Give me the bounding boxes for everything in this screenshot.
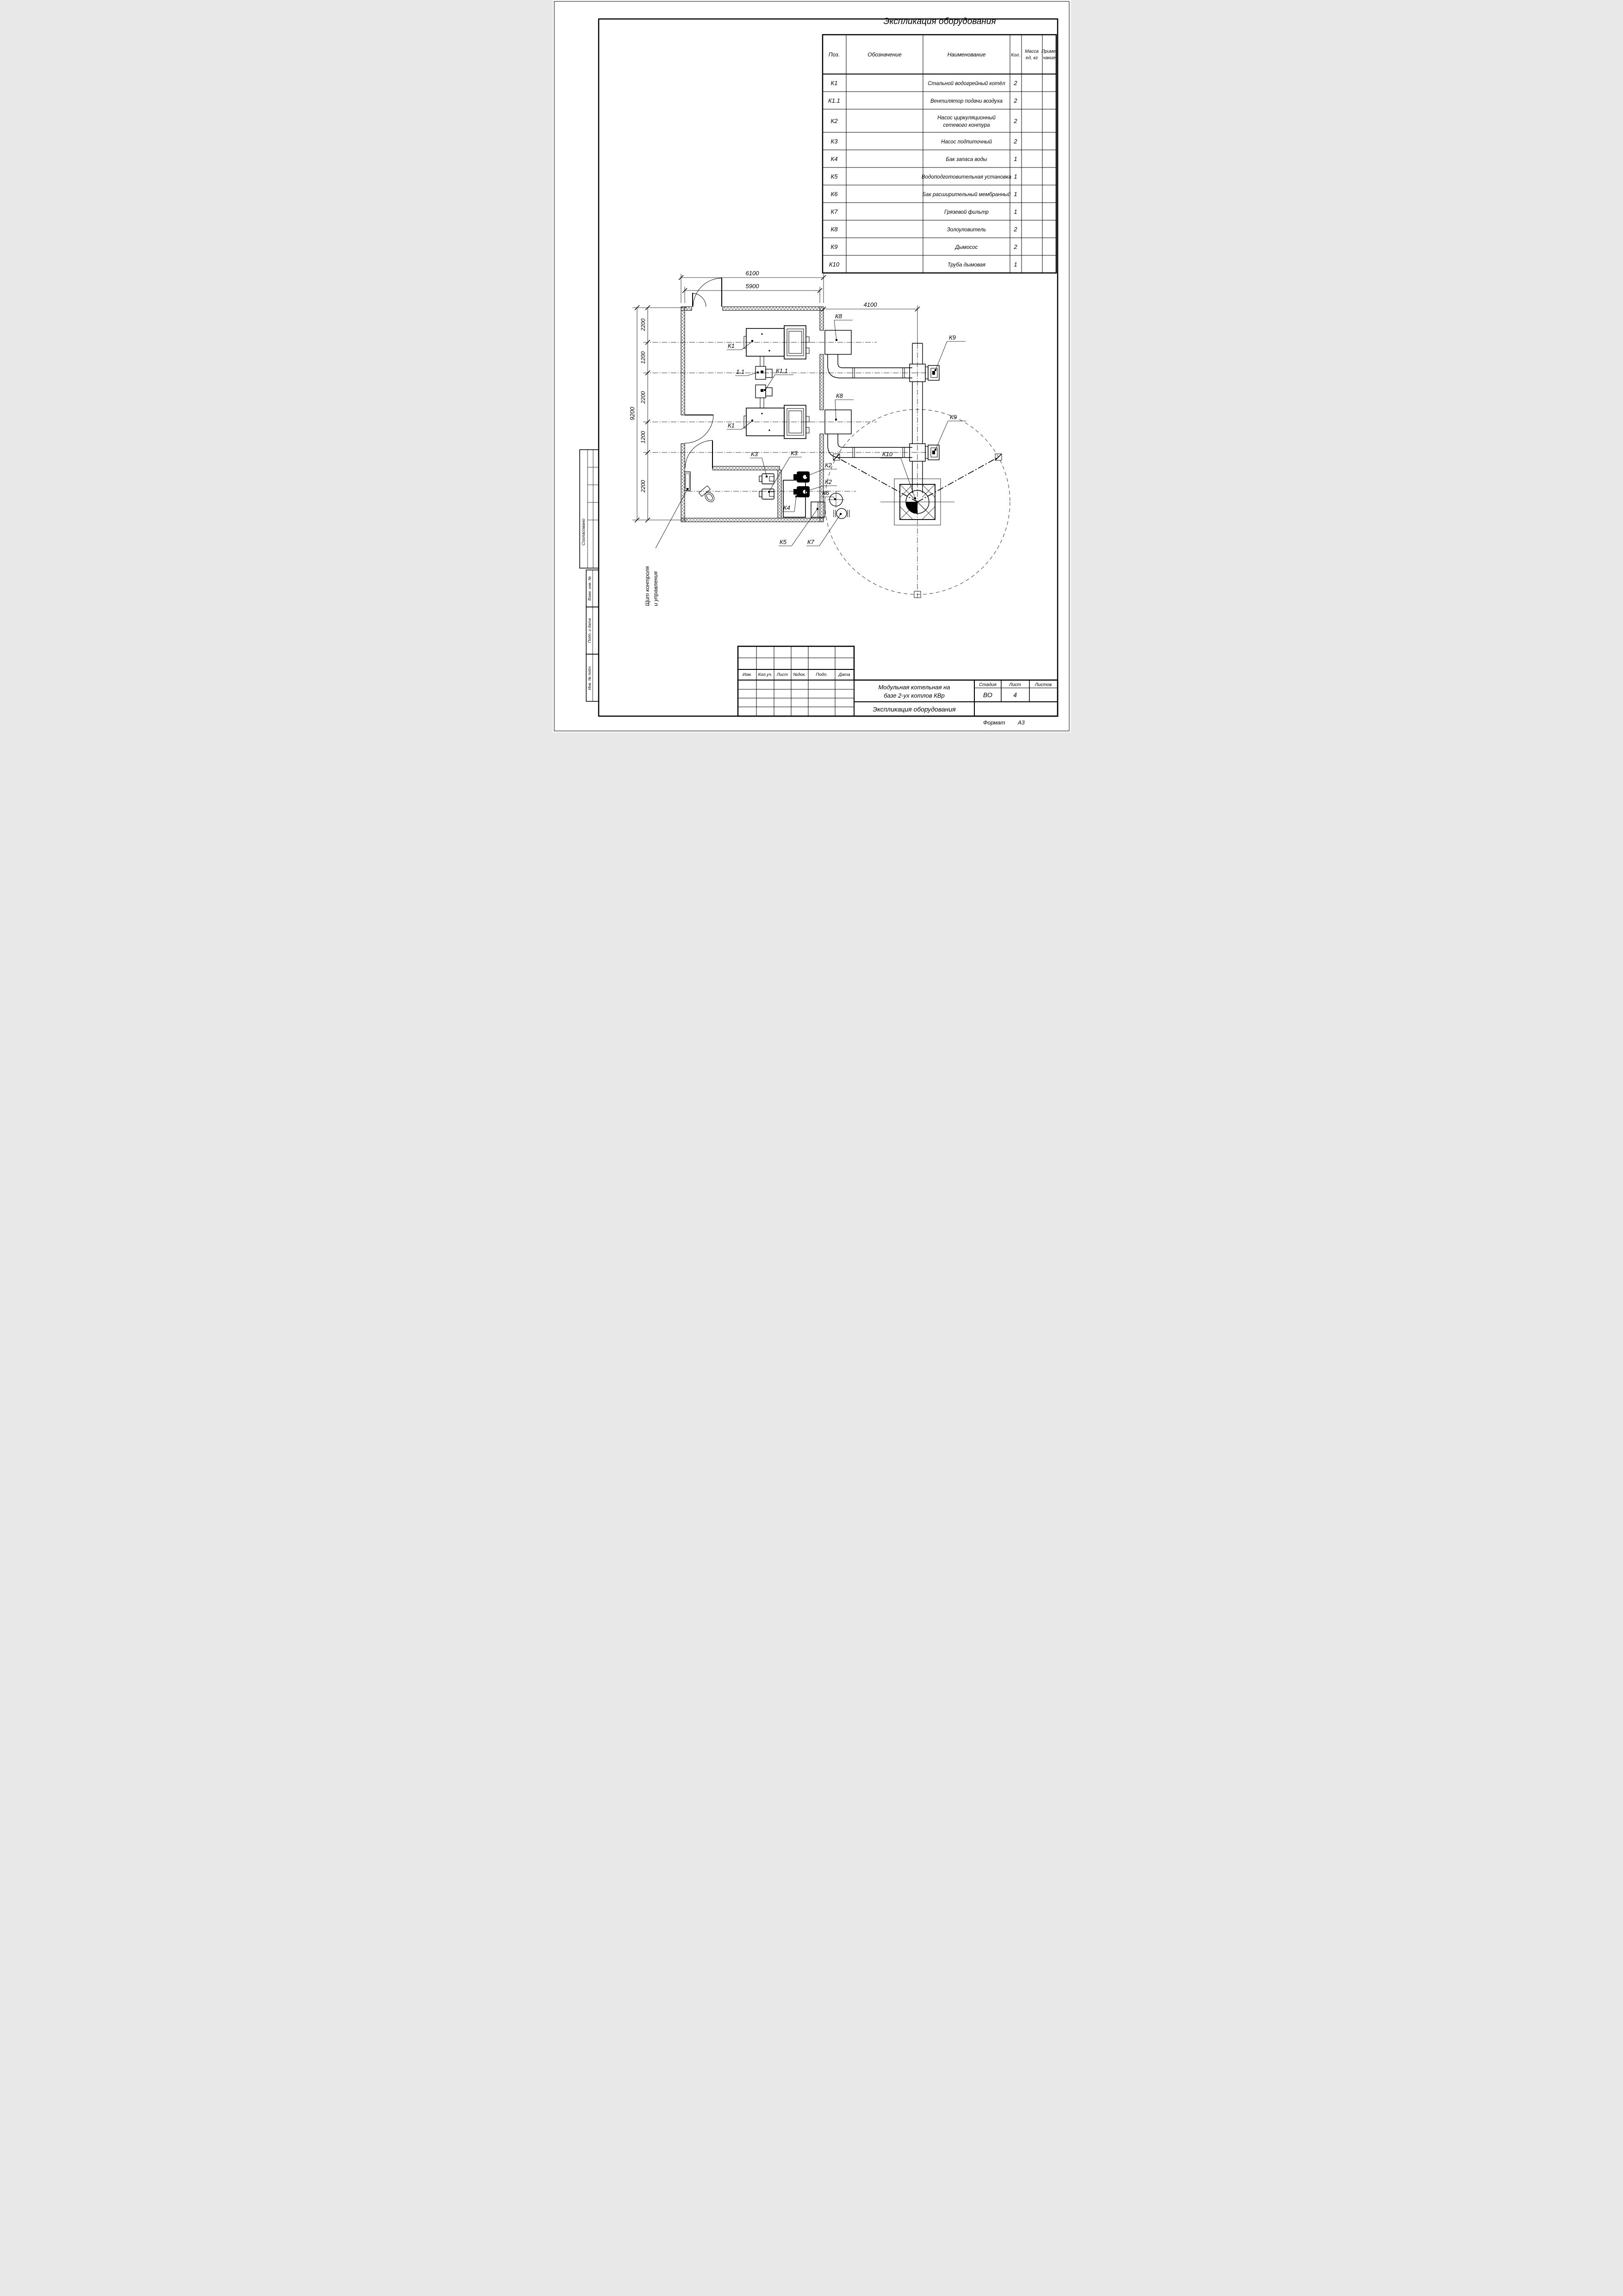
door-left-wall (685, 415, 713, 443)
rev-header: Подп. (816, 672, 827, 677)
label-k9a: К9 (949, 334, 956, 341)
row-qty: 1 (1014, 173, 1017, 180)
col-header-qty: Кол. (1011, 53, 1020, 58)
door-partition (685, 440, 712, 468)
sheet-value: 4 (1013, 691, 1017, 699)
row-qty: 1 (1014, 208, 1017, 215)
project-title-line1: Модульная котельная на (878, 684, 950, 691)
dim-chain-value: 2200 (640, 391, 646, 404)
label-k4: К4 (783, 504, 790, 511)
rev-header: №док. (793, 672, 806, 677)
label-fan2: К1.1 (776, 367, 788, 374)
dim-chain-value: 1200 (640, 351, 646, 364)
stage-label: Стадия (979, 682, 997, 687)
sheet-label: Лист (1009, 682, 1021, 687)
col-header-pos: Поз. (828, 51, 839, 58)
sidebar-cell-inv: Инв. № подл. (587, 666, 592, 690)
door-top (693, 278, 722, 307)
dim-5900-value: 5900 (745, 283, 759, 290)
row-name: Насос циркуляционный (937, 115, 996, 121)
label-control-panel-1: Щит контроля (644, 566, 650, 606)
row-name: Золоуловитель (947, 227, 986, 233)
dim-4100-value: 4100 (863, 301, 877, 308)
dim-chain-value: 2200 (640, 318, 646, 331)
equipment-table-header-text: Поз. Обозначение Наименование Кол. Масса… (828, 49, 1057, 61)
row-pos: К9 (830, 243, 837, 250)
label-fan1: 1.1 (736, 368, 744, 375)
row-pos: К6 (830, 191, 838, 198)
stage-value: ВО (983, 691, 992, 699)
row-name: Грязевой фильтр (944, 210, 989, 215)
row-qty: 2 (1013, 243, 1017, 250)
col-header-mass: Масса (1025, 49, 1039, 54)
row-pos: К1.1 (828, 97, 840, 104)
fan-2 (756, 385, 772, 408)
row-name: Труба дымовая (947, 262, 985, 268)
row-qty: 2 (1013, 226, 1017, 233)
col-header-mass2: ед, кг (1025, 56, 1037, 61)
flue-duct-1 (828, 354, 912, 378)
dimension-4100 (821, 305, 920, 343)
row-qty: 1 (1014, 191, 1017, 198)
label-k3a: К3 (751, 451, 758, 458)
row-pos: К1 (830, 80, 837, 87)
row-qty: 2 (1013, 97, 1017, 104)
label-k3b: К3 (791, 450, 798, 457)
format-value: А3 (1017, 719, 1025, 726)
drawing-canvas: Согласовано Взам. инв. № Подп. и дата Ин… (553, 0, 1071, 732)
label-k2a: К2 (825, 462, 832, 469)
label-k2b: К2 (825, 478, 832, 485)
row-name: Водоподготовительная установка (921, 174, 1011, 180)
label-k7: К7 (807, 538, 815, 545)
row-name: Бак расширительный мембранный (922, 192, 1011, 198)
row-qty: 1 (1014, 261, 1017, 268)
col-header-name: Наименование (947, 51, 985, 58)
sheets-label: Листов (1034, 682, 1051, 687)
row-qty: 2 (1013, 80, 1017, 87)
label-k9b: К9 (950, 414, 957, 421)
label-k6: К6 (822, 489, 830, 496)
label-k8b: К8 (836, 392, 843, 399)
row-pos: К2 (830, 118, 838, 124)
col-header-designation: Обозначение (867, 51, 902, 58)
row-name: Насос подпиточный (941, 139, 992, 145)
equipment-table-title: Экспликация оборудования (883, 17, 996, 26)
dim-9200-value: 9200 (629, 407, 636, 421)
rev-header: Изм. (742, 672, 751, 677)
rev-header: Дата (838, 672, 850, 677)
row-qty: 2 (1013, 138, 1017, 145)
row-pos: К4 (830, 155, 837, 162)
rev-header: Лист (776, 672, 788, 677)
sidebar-stamps (580, 450, 599, 701)
sheet-frame (554, 1, 1069, 731)
sidebar-cell-vzam: Взам. инв. № (587, 576, 592, 601)
axis-lines (643, 342, 928, 598)
row-name: Бак запаса воды (946, 157, 987, 162)
sidebar-cell-podp: Подп. и дата (587, 618, 592, 643)
row-name: Вентилятор подачи воздуха (930, 99, 1003, 104)
dim-chain-value: 2200 (640, 480, 646, 493)
row-pos: К10 (829, 261, 839, 268)
row-qty: 2 (1013, 118, 1017, 124)
pump-k3-1 (759, 474, 774, 484)
flue-duct-2 (828, 434, 912, 458)
col-header-note: Приме- (1041, 49, 1057, 54)
row-name: сетевого контура (943, 123, 990, 128)
label-k1a: К1 (728, 342, 735, 349)
row-pos: К8 (830, 226, 838, 233)
label-k5: К5 (780, 538, 787, 545)
col-header-note2: чание (1043, 56, 1056, 61)
dim-chain-value: 1200 (640, 431, 646, 443)
rev-header: Кол.уч. (758, 672, 772, 677)
label-k8a: К8 (835, 313, 842, 320)
sidebar-agreed-label: Согласовано (581, 519, 586, 545)
row-pos: К3 (830, 138, 838, 145)
row-name: Дымосос (954, 245, 978, 250)
format-note: Формат А3 (983, 719, 1025, 726)
label-control-panel-2: и управления (652, 571, 659, 606)
label-k1b: К1 (728, 422, 735, 429)
sheet-title: Экспликация оборудования (873, 706, 956, 713)
toilet-symbol (699, 486, 717, 505)
fan-1 (756, 356, 772, 379)
dim-6100-value: 6100 (745, 270, 759, 277)
pump-k3-2 (759, 489, 774, 499)
row-qty: 1 (1014, 155, 1017, 162)
drawing-sheet: Согласовано Взам. инв. № Подп. и дата Ин… (553, 0, 1071, 732)
equipment-table (823, 35, 1056, 273)
project-title-line2: базе 2-ух котлов КВр (884, 692, 945, 699)
row-pos: К5 (830, 173, 838, 180)
label-k10: К10 (882, 451, 893, 458)
format-label: Формат (983, 719, 1005, 726)
row-pos: К7 (830, 208, 838, 215)
row-name: Стальной водогрейный котёл (928, 81, 1005, 87)
control-panel (685, 472, 690, 490)
